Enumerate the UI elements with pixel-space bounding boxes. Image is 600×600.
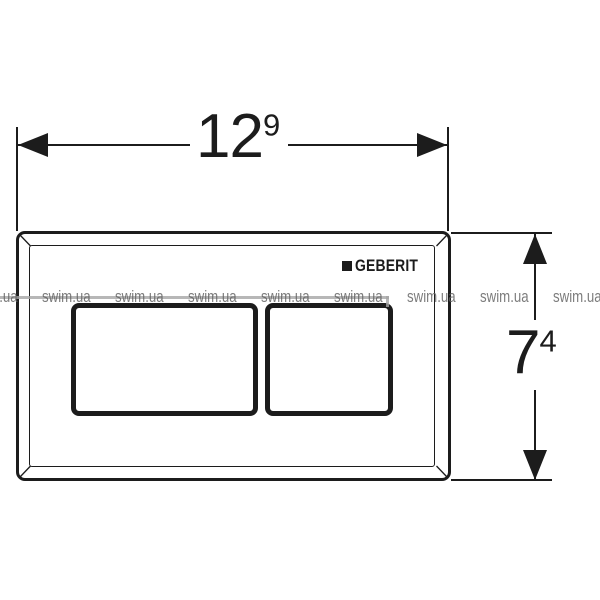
- arrow-left-icon: [18, 133, 48, 157]
- height-superscript: 4: [539, 323, 556, 358]
- flush-button-small: [265, 303, 393, 416]
- arrow-right-icon: [417, 133, 447, 157]
- width-superscript: 9: [263, 107, 280, 142]
- watermark-text: swim.ua: [480, 288, 529, 305]
- geberit-logo: GEBERIT: [342, 257, 432, 274]
- geberit-logo-text: GEBERIT: [355, 257, 418, 274]
- height-value: 7: [506, 318, 539, 387]
- geberit-logo-square-icon: [342, 261, 352, 271]
- width-value: 12: [196, 102, 263, 171]
- width-dimension-label: 129: [196, 106, 280, 168]
- arrow-down-icon: [523, 450, 547, 480]
- watermark-text: swim.ua: [553, 288, 600, 305]
- arrow-up-icon: [523, 234, 547, 264]
- width-extension-line-right: [447, 127, 449, 231]
- watermark-text: swim.ua: [0, 288, 18, 305]
- height-dimension-label: 74: [506, 322, 557, 384]
- dimension-drawing: GEBERIT 129 74 swim.uaswim.uaswim.uaswim…: [0, 0, 600, 600]
- flush-button-large: [71, 303, 258, 416]
